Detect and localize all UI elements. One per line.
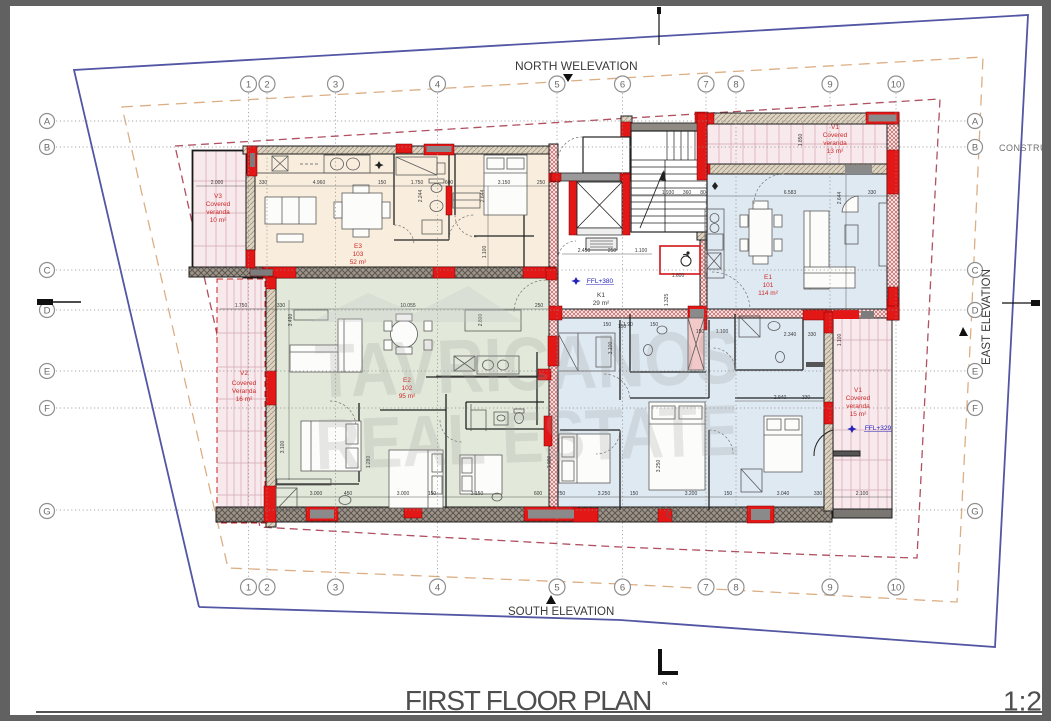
svg-text:2.244: 2.244 xyxy=(418,190,424,203)
svg-text:330: 330 xyxy=(277,303,286,309)
svg-text:F: F xyxy=(972,404,978,415)
svg-text:2: 2 xyxy=(264,583,269,594)
svg-text:4: 4 xyxy=(435,80,440,91)
svg-text:G: G xyxy=(971,507,978,518)
svg-text:V1: V1 xyxy=(831,124,839,131)
svg-text:450: 450 xyxy=(344,491,353,497)
svg-text:V1: V1 xyxy=(854,387,862,394)
svg-text:EAST ELEVATION: EAST ELEVATION xyxy=(981,269,993,365)
svg-text:1: 1 xyxy=(246,80,251,91)
svg-text:veranda: veranda xyxy=(206,209,230,216)
svg-text:veranda: veranda xyxy=(846,403,870,410)
svg-text:E3: E3 xyxy=(354,243,362,250)
svg-text:3.250: 3.250 xyxy=(598,491,611,497)
svg-text:1.100: 1.100 xyxy=(482,246,488,259)
svg-text:A: A xyxy=(972,117,979,128)
svg-text:10: 10 xyxy=(891,80,902,91)
svg-text:150: 150 xyxy=(630,491,639,497)
svg-text:G: G xyxy=(43,507,50,518)
svg-text:3.100: 3.100 xyxy=(280,441,286,454)
svg-text:veranda: veranda xyxy=(823,140,847,147)
svg-text:101: 101 xyxy=(763,282,774,289)
svg-text:Covered: Covered xyxy=(206,201,231,208)
svg-text:C: C xyxy=(972,266,979,277)
svg-text:FFL+329: FFL+329 xyxy=(865,425,892,432)
svg-text:Covered: Covered xyxy=(823,132,848,139)
svg-text:330: 330 xyxy=(802,395,811,401)
svg-text:4.960: 4.960 xyxy=(313,180,326,186)
svg-text:250: 250 xyxy=(535,303,544,309)
svg-text:9: 9 xyxy=(827,80,832,91)
svg-text:1.600: 1.600 xyxy=(672,273,685,279)
svg-text:250: 250 xyxy=(608,248,617,254)
svg-text:7: 7 xyxy=(703,80,708,91)
svg-text:F: F xyxy=(44,404,50,415)
svg-text:Covered: Covered xyxy=(232,380,257,387)
svg-text:10: 10 xyxy=(891,583,902,594)
svg-text:103: 103 xyxy=(353,251,364,258)
svg-text:360: 360 xyxy=(683,190,692,196)
svg-text:3.040: 3.040 xyxy=(777,491,790,497)
svg-text:E: E xyxy=(44,367,50,378)
svg-text:Covered: Covered xyxy=(846,395,871,402)
svg-text:4: 4 xyxy=(435,583,440,594)
svg-text:A: A xyxy=(44,117,51,128)
svg-text:E: E xyxy=(972,367,978,378)
svg-text:1.750: 1.750 xyxy=(411,180,424,186)
svg-text:5: 5 xyxy=(554,583,559,594)
svg-text:2: 2 xyxy=(662,681,669,685)
svg-text:3.490: 3.490 xyxy=(288,314,294,327)
svg-text:3: 3 xyxy=(333,80,338,91)
svg-text:330: 330 xyxy=(868,190,877,196)
svg-text:6: 6 xyxy=(620,80,625,91)
svg-text:1.850: 1.850 xyxy=(798,134,804,147)
svg-text:REAL ESTATE: REAL ESTATE xyxy=(314,391,741,486)
svg-text:1.750: 1.750 xyxy=(235,303,248,309)
svg-text:330: 330 xyxy=(259,180,268,186)
svg-text:150: 150 xyxy=(428,491,437,497)
svg-text:15 m²: 15 m² xyxy=(850,411,867,418)
svg-text:3.150: 3.150 xyxy=(498,180,511,186)
svg-text:8: 8 xyxy=(733,583,738,594)
svg-text:3.000: 3.000 xyxy=(397,491,410,497)
svg-text:7: 7 xyxy=(703,583,708,594)
svg-text:80: 80 xyxy=(700,190,706,196)
svg-text:2.940: 2.940 xyxy=(774,395,787,401)
svg-text:600: 600 xyxy=(534,491,543,497)
svg-text:2: 2 xyxy=(264,80,269,91)
svg-text:29 m²: 29 m² xyxy=(593,300,610,307)
svg-text:2.000: 2.000 xyxy=(211,180,224,186)
svg-text:C: C xyxy=(44,266,51,277)
svg-text:NORTH WELEVATION: NORTH WELEVATION xyxy=(515,59,638,73)
svg-text:1.325: 1.325 xyxy=(664,294,670,307)
svg-text:B: B xyxy=(972,143,978,154)
svg-text:3.000: 3.000 xyxy=(310,491,323,497)
svg-text:9: 9 xyxy=(827,583,832,594)
svg-text:E1: E1 xyxy=(764,274,772,281)
svg-text:3: 3 xyxy=(333,583,338,594)
svg-text:2.340: 2.340 xyxy=(784,332,797,338)
svg-text:1.100: 1.100 xyxy=(837,334,843,347)
svg-text:2.100: 2.100 xyxy=(856,491,869,497)
svg-text:8: 8 xyxy=(733,80,738,91)
svg-text:K1: K1 xyxy=(597,292,605,299)
svg-text:6.583: 6.583 xyxy=(784,190,797,196)
svg-text:10 m²: 10 m² xyxy=(210,217,227,224)
svg-text:3.150: 3.150 xyxy=(471,491,484,497)
svg-text:Veranda: Veranda xyxy=(232,388,257,395)
svg-text:2.644: 2.644 xyxy=(837,192,843,205)
svg-text:1.930: 1.930 xyxy=(662,190,675,196)
svg-text:5: 5 xyxy=(554,80,559,91)
svg-text:3.200: 3.200 xyxy=(685,491,698,497)
svg-text:16 m²: 16 m² xyxy=(236,396,253,403)
svg-text:330: 330 xyxy=(814,491,823,497)
svg-text:250: 250 xyxy=(557,491,566,497)
svg-text:6: 6 xyxy=(620,583,625,594)
svg-text:150: 150 xyxy=(378,180,387,186)
svg-text:D: D xyxy=(972,306,979,317)
svg-text:FFL+380: FFL+380 xyxy=(587,278,614,285)
svg-text:2.450: 2.450 xyxy=(578,248,591,254)
svg-text:1.100: 1.100 xyxy=(635,248,648,254)
svg-text:2.644: 2.644 xyxy=(480,190,486,203)
svg-text:114 m²: 114 m² xyxy=(758,290,779,297)
svg-text:150: 150 xyxy=(724,491,733,497)
svg-text:1: 1 xyxy=(246,583,251,594)
svg-text:B: B xyxy=(44,143,50,154)
svg-text:V2: V2 xyxy=(240,370,248,377)
svg-text:600: 600 xyxy=(445,180,454,186)
svg-text:250: 250 xyxy=(537,180,546,186)
svg-text:SOUTH ELEVATION: SOUTH ELEVATION xyxy=(508,606,614,618)
svg-text:330: 330 xyxy=(808,332,817,338)
svg-text:V3: V3 xyxy=(214,193,222,200)
svg-text:52 m²: 52 m² xyxy=(350,259,367,266)
svg-text:D: D xyxy=(44,306,51,317)
svg-text:13 m²: 13 m² xyxy=(827,148,844,155)
